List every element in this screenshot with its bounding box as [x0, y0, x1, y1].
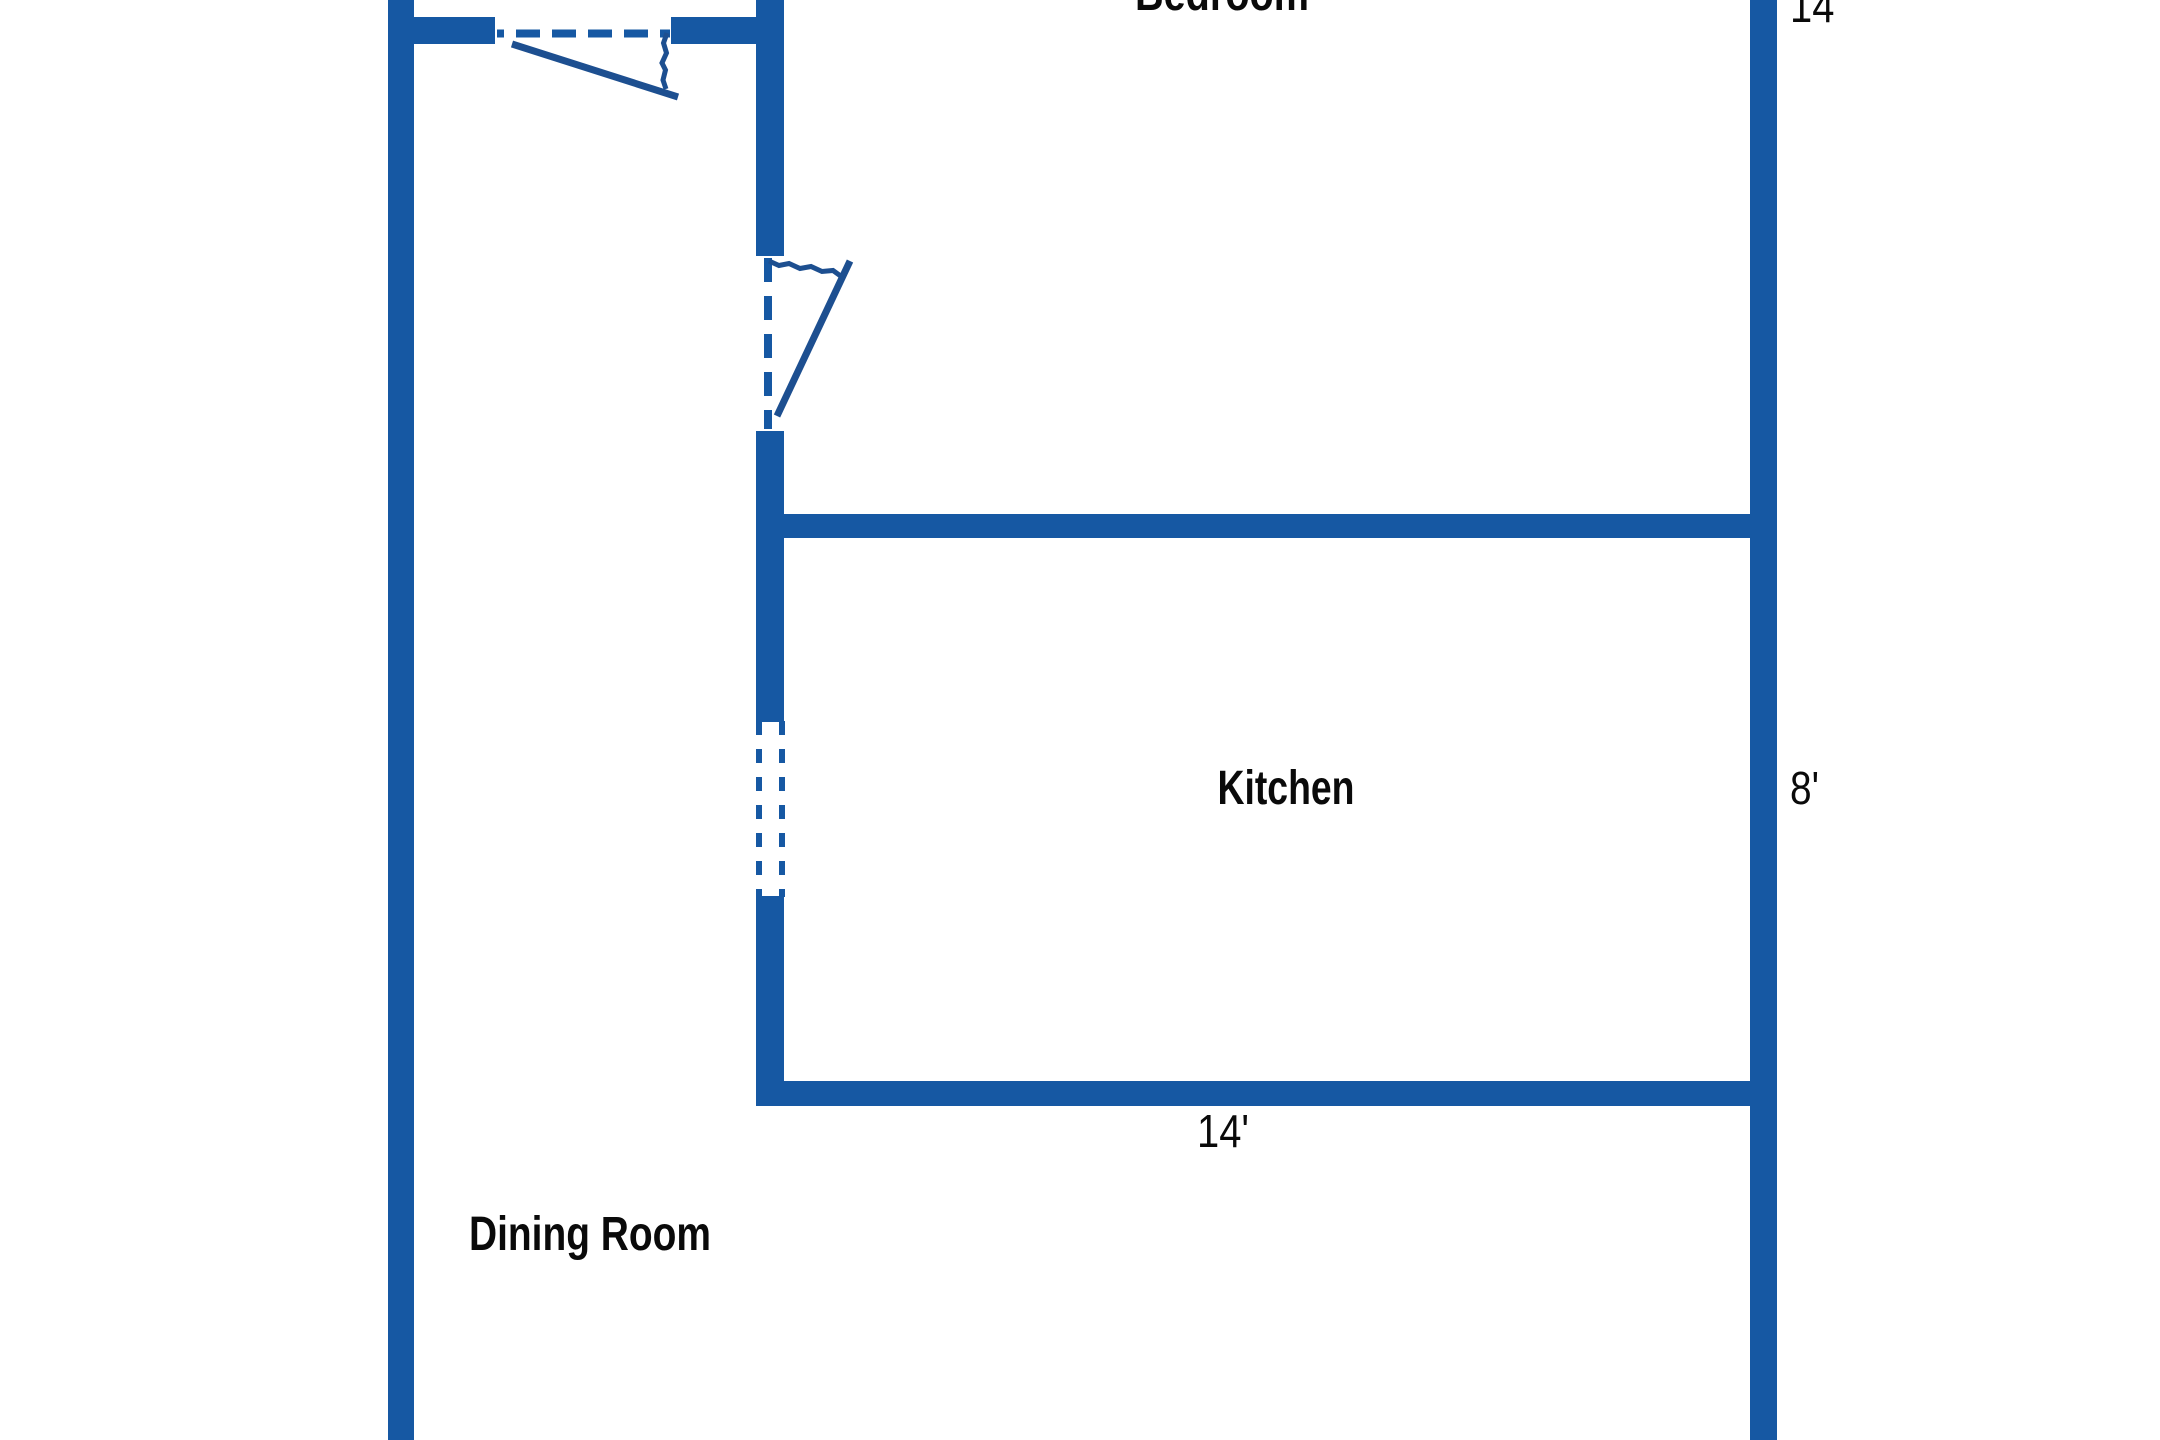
svg-text:Kitchen: Kitchen: [1218, 762, 1355, 815]
svg-text:14': 14': [1790, 0, 1842, 32]
svg-text:Dining Room: Dining Room: [469, 1208, 711, 1261]
svg-text:8': 8': [1790, 762, 1819, 814]
svg-text:14': 14': [1197, 1105, 1249, 1157]
svg-text:Bedroom: Bedroom: [1135, 0, 1309, 21]
